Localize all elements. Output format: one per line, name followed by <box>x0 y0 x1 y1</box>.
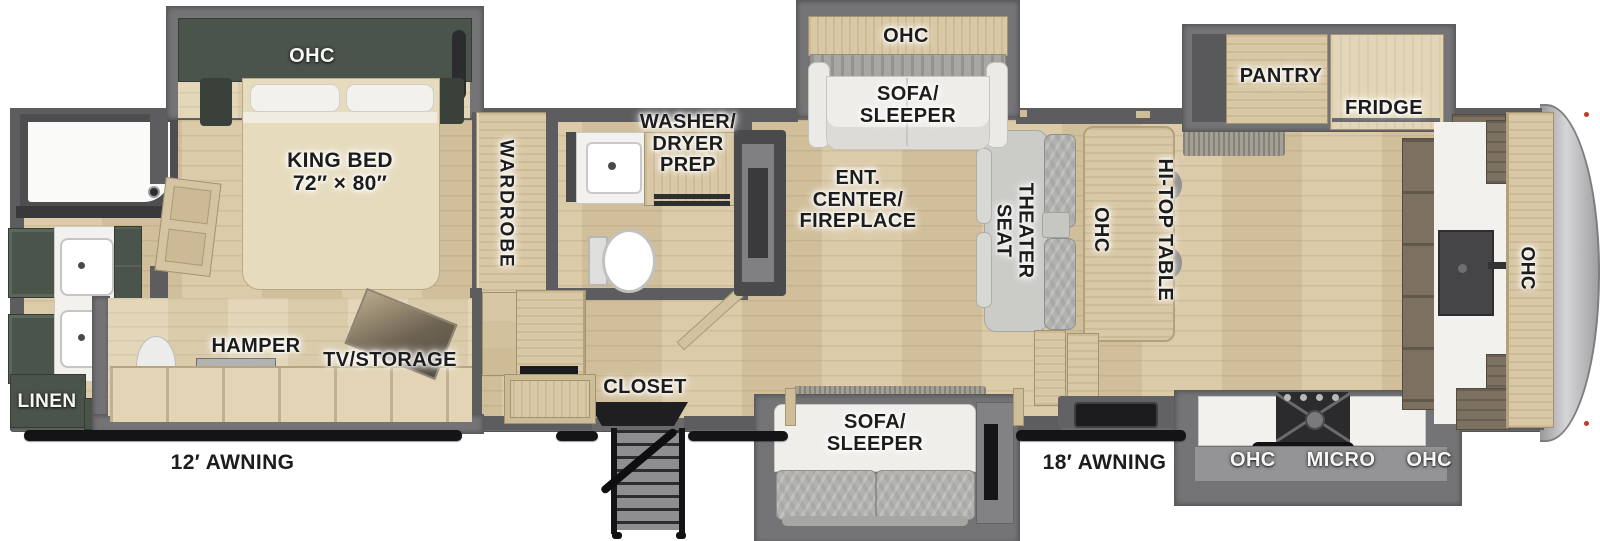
sofa-top-ohc-label: OHC <box>846 26 966 48</box>
sofa-top-line2: SLEEPER <box>838 106 978 128</box>
nightstand-left <box>200 78 232 126</box>
tv-storage-dresser <box>110 366 472 422</box>
slide-rail-right <box>1013 388 1024 426</box>
linen-label: LINEN <box>4 392 90 413</box>
washer-vent-2 <box>654 201 730 206</box>
theater-line1: THEATER <box>1014 176 1036 286</box>
wall-bottom-3 <box>684 416 758 430</box>
sofa-bottom-seat-2 <box>876 470 975 520</box>
theater-seatback-2 <box>1044 238 1076 330</box>
sofa-top-label: SOFA/ SLEEPER <box>838 84 978 127</box>
entry-landing <box>588 402 688 426</box>
theater-footrest-1 <box>976 148 992 224</box>
entry-steps-rail-right <box>679 428 685 534</box>
bath-door <box>154 177 221 277</box>
fireplace-insert <box>748 168 768 258</box>
closet-label: CLOSET <box>580 377 710 399</box>
step-wheel-right <box>676 532 686 539</box>
ent-line1: ENT. <box>778 168 938 190</box>
vanity-sink-1 <box>60 238 114 296</box>
medicine-cabinet-1 <box>8 228 58 298</box>
hitop-chair-2 <box>1067 333 1099 405</box>
awning-18-label: 18′ AWNING <box>1012 452 1197 475</box>
kitchen-sink <box>1074 402 1158 428</box>
king-bed-line1: KING BED <box>265 150 415 173</box>
cooktop <box>1276 392 1350 444</box>
shower-drain <box>148 186 160 198</box>
hitop-chair-1 <box>1034 330 1066 406</box>
awning-bar-18ft-b <box>688 431 788 441</box>
bedroom-ohc-label: OHC <box>262 46 362 68</box>
toilet-bowl <box>602 229 656 293</box>
kitchen-side-cabinets <box>1402 138 1438 410</box>
midbath-wall-left <box>546 112 558 300</box>
sofa-top-line1: SOFA/ <box>838 84 978 106</box>
marker-light-top <box>1584 112 1589 117</box>
sofa-bottom-label: SOFA/ SLEEPER <box>800 412 950 455</box>
awning-12-label: 12′ AWNING <box>140 452 325 475</box>
corner-cabinet-bottom-right <box>1456 388 1510 430</box>
kitchen-micro-label: MICRO <box>1307 450 1376 472</box>
sofa-bottom-lip <box>782 516 968 526</box>
awning-bar-18ft-c <box>1016 430 1186 441</box>
theater-line2: SEAT <box>992 176 1014 286</box>
washer-vent-1 <box>654 194 730 199</box>
ent-line2: CENTER/ <box>778 190 938 212</box>
theater-footrest-2 <box>976 232 992 308</box>
kitchen-ohc-right-label: OHC <box>1406 450 1452 472</box>
burner-knob-4 <box>1332 394 1339 401</box>
rv-floorplan: OHC KING BED 72″ × 80″ WARDROBE HAMPER T… <box>0 0 1600 541</box>
faucet-1 <box>78 262 85 269</box>
theater-console <box>1042 212 1070 238</box>
wardrobe-label: WARDROBE <box>495 124 516 284</box>
step-wheel-left <box>612 532 622 539</box>
theater-seat-label: THEATER SEAT <box>992 176 1035 286</box>
marker-light-bottom <box>1584 421 1589 426</box>
front-tv-dot <box>1458 264 1467 273</box>
closet-slit <box>520 366 578 374</box>
cooktop-center <box>1305 410 1325 430</box>
bed-sheet-band <box>243 112 437 123</box>
faucet-2 <box>78 334 85 341</box>
king-bed-line2: 72″ × 80″ <box>265 173 415 196</box>
pantry-label: PANTRY <box>1221 66 1341 88</box>
fridge-label: FRIDGE <box>1324 98 1444 120</box>
front-tv <box>1438 230 1494 316</box>
sofa-bottom-line1: SOFA/ <box>800 412 950 434</box>
pillow-right <box>346 84 434 112</box>
shower-sill <box>16 206 174 218</box>
bedroom-steps <box>482 292 520 376</box>
washer-line1: WASHER/ <box>606 112 770 134</box>
kitchen-ohc-left-label: OHC <box>1230 450 1276 472</box>
washer-line2: DRYER <box>606 134 770 156</box>
washer-line3: PREP <box>606 155 770 177</box>
midbath-counter-edge <box>566 132 576 202</box>
ent-center-label: ENT. CENTER/ FIREPLACE <box>778 168 938 233</box>
hamper-label: HAMPER <box>200 336 312 358</box>
sofa-bottom-seat-1 <box>776 470 876 520</box>
burner-knob-2 <box>1300 394 1307 401</box>
slide-rail-left <box>785 388 796 426</box>
sofa-bottom-line2: SLEEPER <box>800 434 950 456</box>
king-bed-label: KING BED 72″ × 80″ <box>265 150 415 195</box>
tv-storage-label: TV/STORAGE <box>308 350 472 372</box>
closet-cabinet <box>516 290 586 376</box>
table-ohc-label: OHC <box>1089 200 1111 260</box>
front-ohc-label: OHC <box>1516 238 1537 298</box>
nightstand-right <box>436 78 464 124</box>
entry-steps <box>615 430 679 530</box>
awning-bar-18ft-a <box>556 431 598 441</box>
washer-dryer-label: WASHER/ DRYER PREP <box>606 112 770 177</box>
hitop-table-label: HI-TOP TABLE <box>1153 145 1175 315</box>
slide-latch-2 <box>1136 111 1150 118</box>
burner-knob-3 <box>1316 394 1323 401</box>
wall-top-3 <box>1016 108 1184 124</box>
kitchen-ohc-micro-labels: OHC MICRO OHC <box>1230 448 1452 474</box>
pillow-left <box>250 84 340 112</box>
burner-knob-1 <box>1284 394 1291 401</box>
sofa-bottom-endtable-inset <box>984 424 998 500</box>
front-tv-mount <box>1488 262 1506 269</box>
kitchen-rug <box>1183 131 1285 156</box>
awning-bar-12ft <box>24 430 462 441</box>
ent-line3: FIREPLACE <box>778 211 938 233</box>
bath-bedroom-wall-a <box>150 112 168 184</box>
